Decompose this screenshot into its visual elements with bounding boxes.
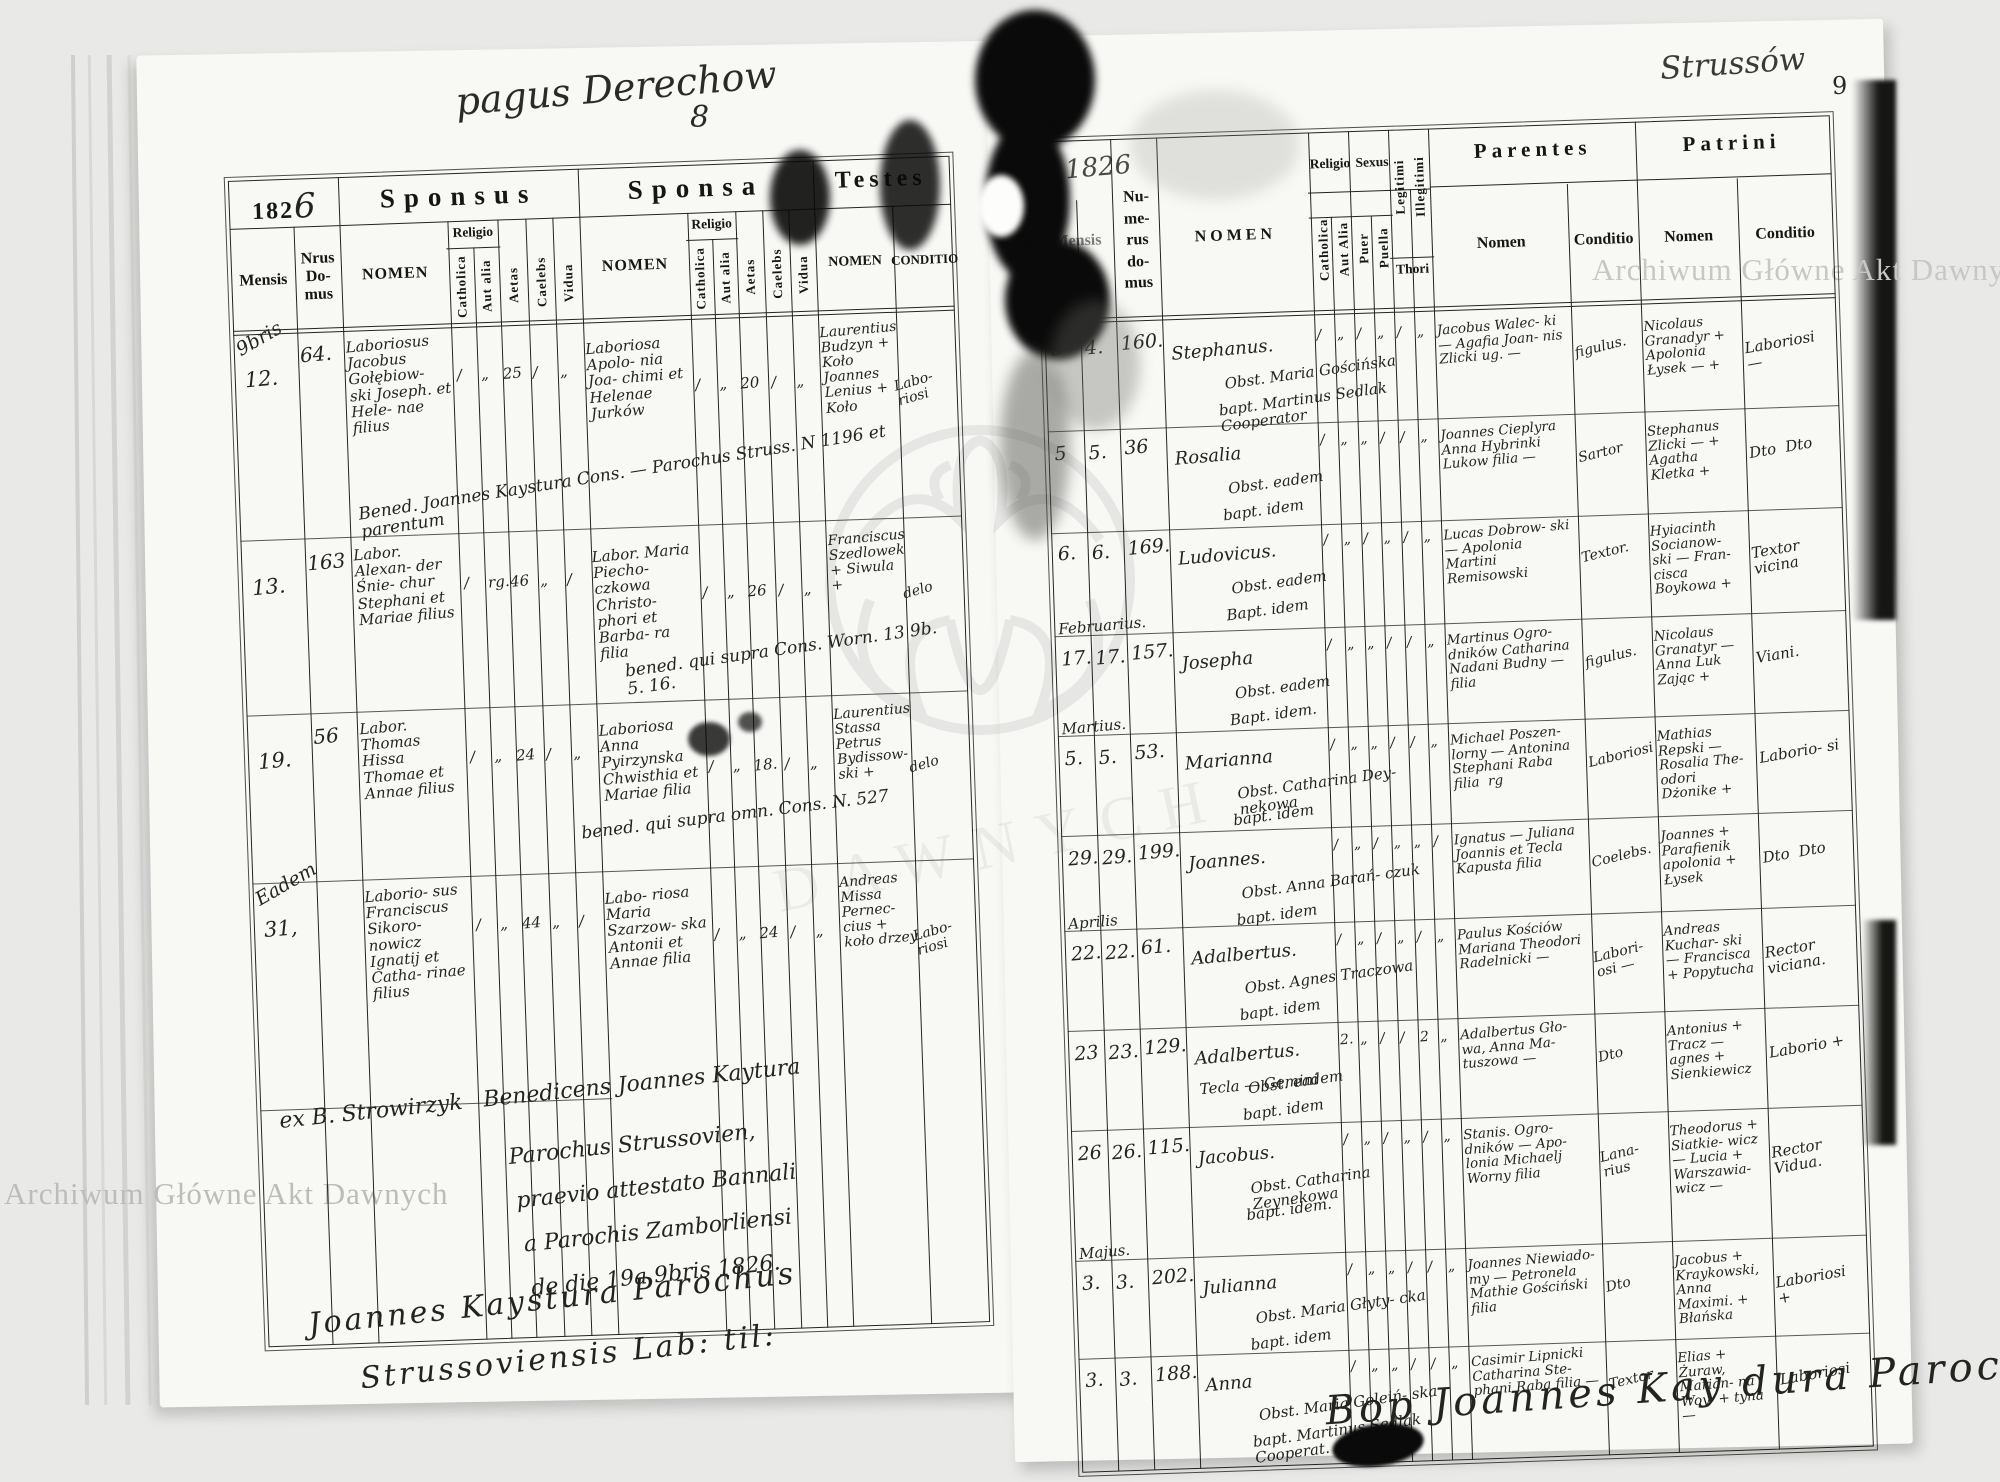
entry-religio-sexus-mark: „ — [1450, 1356, 1459, 1372]
col-catholica-sponsus: Catholica — [453, 253, 471, 322]
col-aut-alia-sponsus: Aut alia — [477, 252, 495, 321]
entry-sponsus-name: Labor. Alexan- der Śnie- chur Stephani e… — [353, 539, 462, 629]
entry-religio-sexus-mark: „ — [1356, 932, 1365, 948]
entry-testes: Andreas Missa Pernec- cius + koło drzey — [839, 870, 919, 952]
col-caelebs-sponsa: Caelebs — [768, 238, 787, 311]
entry-parents: Lucas Dobrow- ski — Apolonia Martini Rem… — [1443, 518, 1578, 587]
entry-religio-sexus-mark: „ — [1360, 432, 1369, 448]
entry-day-born: 6. — [1057, 543, 1077, 565]
entry-house-number: 53. — [1134, 741, 1166, 764]
entry-day-baptized: 26. — [1111, 1141, 1143, 1164]
entry-sponsus-mark: 46 — [509, 572, 529, 590]
right-page-number: 9 — [1832, 72, 1847, 100]
entry-religio-sexus-mark: „ — [1363, 1132, 1372, 1148]
entry-day-born: 5. — [1064, 748, 1084, 770]
entry-sponsa-name: Laboriosa Anna Pyirzynska Chwisthia et M… — [598, 714, 707, 804]
entry-day: 13. — [251, 574, 286, 599]
stain-highlight — [978, 175, 1024, 237]
page-dark-edge — [1852, 80, 1896, 620]
entry-religio-sexus-mark: / — [1410, 1358, 1416, 1373]
entry-day: 31, — [263, 916, 298, 941]
entry-day-baptized: 5. — [1088, 442, 1108, 464]
year-printed: 182 — [252, 198, 295, 225]
entry-religio-sexus-mark: „ — [1366, 636, 1375, 652]
entry-sponsa-mark: „ — [803, 581, 812, 598]
entry-sponsa-mark: 18. — [753, 756, 778, 774]
entry-sponsus-mark: 24 — [515, 746, 535, 764]
entry-house-number: 202. — [1151, 1265, 1195, 1289]
entry-religio-sexus-mark: / — [1430, 1357, 1436, 1372]
entry-religio-sexus-mark: „ — [1393, 836, 1402, 852]
col-nrus-domus: Nrus Do- mus — [294, 249, 342, 305]
entry-sponsus-mark: „ — [480, 366, 489, 383]
left-page-number: 8 — [690, 100, 709, 135]
entry-sponsa-name: Labor. Maria Piecho- czkowa Christo- pho… — [591, 540, 702, 662]
entry-religio-sexus-mark: „ — [1350, 737, 1359, 753]
entry-godparents: Andreas Kuchar- ski — Francisca + Popytu… — [1663, 917, 1760, 983]
year-handwritten-digit: 6 — [293, 186, 316, 227]
col-mensis: Mensis — [231, 271, 296, 291]
entry-parents: Martinus Ogro- dników Catharina Nadani B… — [1446, 623, 1581, 692]
entry-religio-sexus-mark: „ — [1370, 736, 1379, 752]
entry-sponsus-mark: „ — [559, 363, 568, 380]
col-vidua-sponsa: Vidua — [794, 241, 812, 310]
entry-religio-sexus-mark: / — [1333, 838, 1339, 853]
baptism-register-table: 1826 Mensis Nu- me- rus do- mus NOMEN Re… — [1038, 115, 1874, 1473]
entry-day-born: 23 — [1074, 1042, 1100, 1065]
col-patrini-nomen: Nomen — [1638, 226, 1739, 247]
entry-day-born: 29. — [1067, 847, 1099, 870]
col-caelebs-sponsus: Caelebs — [532, 246, 551, 319]
entry-godparents: Nicolaus Granadyr + Apolonia Łysek — + — [1643, 312, 1740, 378]
entry-religio-sexus-mark: / — [1350, 1360, 1356, 1375]
entry-religio-sexus-mark: / — [1326, 638, 1332, 653]
entry-sponsa-mark: „ — [796, 373, 805, 390]
col-religio-sponsus: Religio — [446, 223, 501, 241]
ink-burn-stain — [880, 120, 940, 250]
entry-religio-sexus-mark: „ — [1336, 327, 1345, 343]
entry-day: 12. — [244, 366, 279, 391]
entry-sponsus-mark: „ — [539, 572, 548, 589]
entry-religio-sexus-mark: „ — [1416, 325, 1425, 341]
col-parentes-conditio: Conditio — [1568, 230, 1639, 250]
entry-religio-sexus-mark: „ — [1353, 837, 1362, 853]
entry-house-number: 199. — [1137, 840, 1181, 864]
entry-sponsa-mark: 24 — [759, 924, 779, 942]
col-aetas-sponsa: Aetas — [741, 243, 759, 312]
entry-religio-sexus-mark: „ — [1370, 1359, 1379, 1375]
entry-house-number: 36 — [1124, 436, 1150, 459]
entry-godparents: Jacobus + Kraykowski, Anna Maximi. + Bła… — [1674, 1247, 1772, 1327]
ink-blot — [688, 722, 730, 756]
year-handwritten: 1826 — [1064, 151, 1132, 185]
entry-day-born: 26 — [1077, 1142, 1103, 1165]
entry-religio-sexus-mark: / — [1390, 736, 1396, 751]
entry-godparents: Antonius + Tracz — agnes + Sienkiewicz — [1666, 1017, 1763, 1083]
col-nomen-testes: NOMEN — [816, 253, 895, 272]
entry-religio-sexus-mark: „ — [1420, 430, 1429, 446]
ink-burn-stain — [770, 150, 830, 245]
entry-house-number: 115. — [1147, 1135, 1191, 1159]
entry-sponsus-mark: „ — [493, 748, 502, 765]
entry-religio-sexus-mark: / — [1347, 1263, 1353, 1278]
entry-house-number: 61. — [1140, 936, 1172, 959]
entry-godparents: Joannes + Parafienik apolonia + Łysek — [1660, 822, 1757, 888]
entry-religio-sexus-mark: / — [1373, 837, 1379, 852]
entry-day-born: 3. — [1084, 1370, 1104, 1392]
year-cell: 1826 — [232, 187, 335, 227]
entry-religio-sexus-mark: / — [1380, 431, 1386, 446]
entry-religio-sexus-mark: / — [1410, 735, 1416, 750]
entry-religio-sexus-mark: „ — [1403, 1131, 1412, 1147]
smoke-smudge — [1130, 90, 1300, 200]
entry-religio-sexus-mark: / — [1416, 930, 1422, 945]
gutter-smudge — [1050, 300, 1140, 430]
entry-sponsus-mark: rg. — [487, 573, 510, 591]
entry-sponsa-mark: „ — [726, 583, 735, 600]
page-dark-edge — [1862, 920, 1896, 1145]
entry-day-baptized: 5. — [1098, 747, 1118, 769]
entry-religio-sexus-mark: „ — [1443, 1129, 1452, 1145]
entry-religio-sexus-mark: / — [1406, 635, 1412, 650]
entry-religio-sexus-mark: / — [1330, 738, 1336, 753]
entry-day-baptized: 6. — [1091, 542, 1111, 564]
entry-day-born: 22. — [1070, 942, 1102, 965]
marriage-register-table: 1826 Sponsus Sponsa Testes Mensis Nrus D… — [228, 156, 990, 1347]
entry-sponsus-mark: „ — [572, 745, 581, 762]
entry-religio-sexus-mark: „ — [1430, 734, 1439, 750]
col-conditio-testes: CONDITIO — [891, 251, 952, 269]
entry-godparents: Hyiacinth Socianow- ski — Fran- cisca Bo… — [1649, 517, 1747, 597]
entry-religio-sexus-mark: / — [1403, 530, 1409, 545]
entry-parents: Michael Poszen- lorny — Antonina Stephan… — [1450, 723, 1585, 792]
entry-religio-sexus-mark: / — [1363, 532, 1369, 547]
entry-religio-sexus-mark: / — [1316, 328, 1322, 343]
entry-house-number: 169. — [1127, 535, 1171, 559]
col-aetas-sponsus: Aetas — [504, 251, 522, 320]
entry-religio-sexus-mark: „ — [1359, 1032, 1368, 1048]
entry-house-number: 129. — [1143, 1035, 1187, 1059]
entry-sponsa-mark: „ — [732, 757, 741, 774]
entry-religio-sexus-mark: / — [1379, 1031, 1385, 1046]
entry-religio-sexus-mark: / — [1323, 533, 1329, 548]
entry-religio-sexus-mark: „ — [1439, 1029, 1448, 1045]
col-numerus-domus: Nu- me- rus do- mus — [1114, 186, 1162, 295]
entry-religio-sexus-mark: / — [1407, 1261, 1413, 1276]
entry-house-number: 163 — [306, 550, 346, 575]
entry-religio-sexus-mark: „ — [1387, 1261, 1396, 1277]
col-nomen-sponsus: NOMEN — [341, 263, 450, 285]
entry-sponsus-mark: 25 — [502, 364, 522, 382]
entry-sponsa-mark: 20 — [740, 374, 760, 392]
entry-religio-sexus-mark: / — [1396, 325, 1402, 340]
entry-religio-sexus-mark: „ — [1340, 432, 1349, 448]
entry-religio-sexus-mark: „ — [1346, 637, 1355, 653]
col-religio-sponsa: Religio — [685, 215, 738, 233]
col-illegitimi: Illegitimi — [1410, 137, 1429, 237]
entry-religio-sexus-mark: / — [1399, 1031, 1405, 1046]
entry-house-number: 188. — [1154, 1362, 1198, 1386]
entry-religio-sexus-mark: „ — [1390, 1358, 1399, 1374]
entry-religio-sexus-mark: 2 — [1419, 1030, 1429, 1046]
entry-day-baptized: 3. — [1115, 1272, 1135, 1294]
entry-religio-sexus-mark: / — [1400, 430, 1406, 445]
entry-sponsus-name: Laborio- sus Franciscus Sikoro- nowicz I… — [364, 880, 475, 1002]
entry-godparents: Theodorus + Siatkie- wicz — Lucia + Wars… — [1669, 1117, 1767, 1197]
entry-religio-sexus-mark: „ — [1376, 326, 1385, 342]
col-aut-alia-sponsa: Aut alia — [716, 243, 734, 312]
col-nomen-sponsa: NOMEN — [581, 255, 690, 277]
entry-religio-sexus-mark: „ — [1423, 530, 1432, 546]
entry-religio-sexus-mark: „ — [1367, 1262, 1376, 1278]
entry-sponsa-mark: 26 — [747, 582, 767, 600]
entry-day-baptized: 17. — [1094, 646, 1126, 669]
entry-testes: Laurentius Budzyn + Koło Joannes Lenius … — [819, 320, 901, 417]
entry-religio-sexus-mark: / — [1320, 433, 1326, 448]
entry-religio-sexus-mark: / — [1356, 327, 1362, 342]
entry-religio-sexus-mark: 2. — [1339, 1032, 1354, 1048]
entry-religio-sexus-mark: / — [1336, 933, 1342, 948]
entry-parents: Stanis. Ogro- dników — Apo- lonia Michae… — [1463, 1117, 1598, 1186]
entry-sponsus-mark: „ — [499, 915, 508, 932]
entry-religio-sexus-mark: „ — [1447, 1259, 1456, 1275]
hdr-sexus: Sexus — [1351, 154, 1394, 171]
entry-day-born: 3. — [1081, 1273, 1101, 1295]
entry-religio-sexus-mark: „ — [1413, 835, 1422, 851]
ink-blot — [738, 712, 762, 732]
entry-godparents: Stephanus Zlicki — + Agatha Kletka + — [1646, 417, 1743, 483]
scanned-register-spread: Archiwum Główne Akt Dawnych Archiwum Głó… — [0, 0, 2000, 1482]
entry-religio-sexus-mark: / — [1383, 1131, 1389, 1146]
entry-day: 19. — [257, 748, 292, 773]
entry-sponsus-name: Laboriosus Jacobus Gołębiow- ski Joseph.… — [345, 331, 455, 437]
entry-day-baptized: 22. — [1104, 941, 1136, 964]
entry-sponsa-mark: „ — [738, 925, 747, 942]
entry-sponsus-name: Labor. Thomas Hissa Thomae et Annae fili… — [359, 713, 468, 803]
entry-godparents: Mathias Repski — Rosalia The- odori Dżon… — [1656, 722, 1754, 802]
entry-house-number: 157. — [1130, 640, 1174, 664]
col-legitimi: Legitimi — [1390, 137, 1409, 237]
entry-religio-sexus-mark: „ — [1343, 532, 1352, 548]
entry-religio-sexus-mark: / — [1343, 1133, 1349, 1148]
entry-house-number: 64. — [299, 343, 333, 367]
entry-religio-sexus-mark: „ — [1396, 931, 1405, 947]
entry-sponsa-name: Laboriosa Apolo- nia Joa- chimi et Helen… — [585, 332, 694, 422]
entry-religio-sexus-mark: / — [1423, 1130, 1429, 1145]
entry-parents: Joannes Niewiado- my — Petronela Mathie … — [1467, 1247, 1602, 1316]
entry-religio-sexus-mark: / — [1376, 931, 1382, 946]
entry-religio-sexus-mark: / — [1427, 1260, 1433, 1275]
entry-religio-sexus-mark: „ — [1426, 634, 1435, 650]
entry-godparents: Nicolaus Granatyr — Anna Luk Zając + — [1653, 622, 1750, 688]
entry-religio-sexus-mark: „ — [1436, 929, 1445, 945]
entry-religio-sexus-mark: / — [1386, 636, 1392, 651]
entry-sponsa-name: Labo- riosa Maria Szarzow- ska Antonii e… — [604, 882, 713, 972]
entry-religio-sexus-mark: „ — [1383, 531, 1392, 547]
entry-sponsus-mark: 44 — [521, 914, 541, 932]
entry-testes: Laurentius Stassa Petrus Bydissow- ski + — [833, 702, 913, 784]
entry-sponsa-mark: „ — [719, 375, 728, 392]
col-vidua-sponsus: Vidua — [559, 249, 577, 318]
entry-religio-sexus-mark: / — [1433, 835, 1439, 850]
entry-sponsus-mark: „ — [551, 914, 560, 931]
entry-day-born: 17. — [1060, 647, 1092, 670]
entry-testes: Franciscus Szedlowek + Siwula + — [827, 528, 906, 595]
entry-sponsa-mark: „ — [815, 922, 824, 939]
hdr-religio: Religio — [1307, 155, 1354, 173]
entry-sponsa-mark: „ — [809, 755, 818, 772]
col-catholica-sponsa: Catholica — [691, 244, 709, 313]
entry-day-baptized: 3. — [1118, 1368, 1138, 1390]
entry-house-number: 56 — [312, 725, 339, 749]
col-patrini-conditio: Conditio — [1738, 223, 1832, 244]
entry-day-baptized: 23. — [1108, 1041, 1140, 1064]
entry-day-baptized: 29. — [1101, 846, 1133, 869]
